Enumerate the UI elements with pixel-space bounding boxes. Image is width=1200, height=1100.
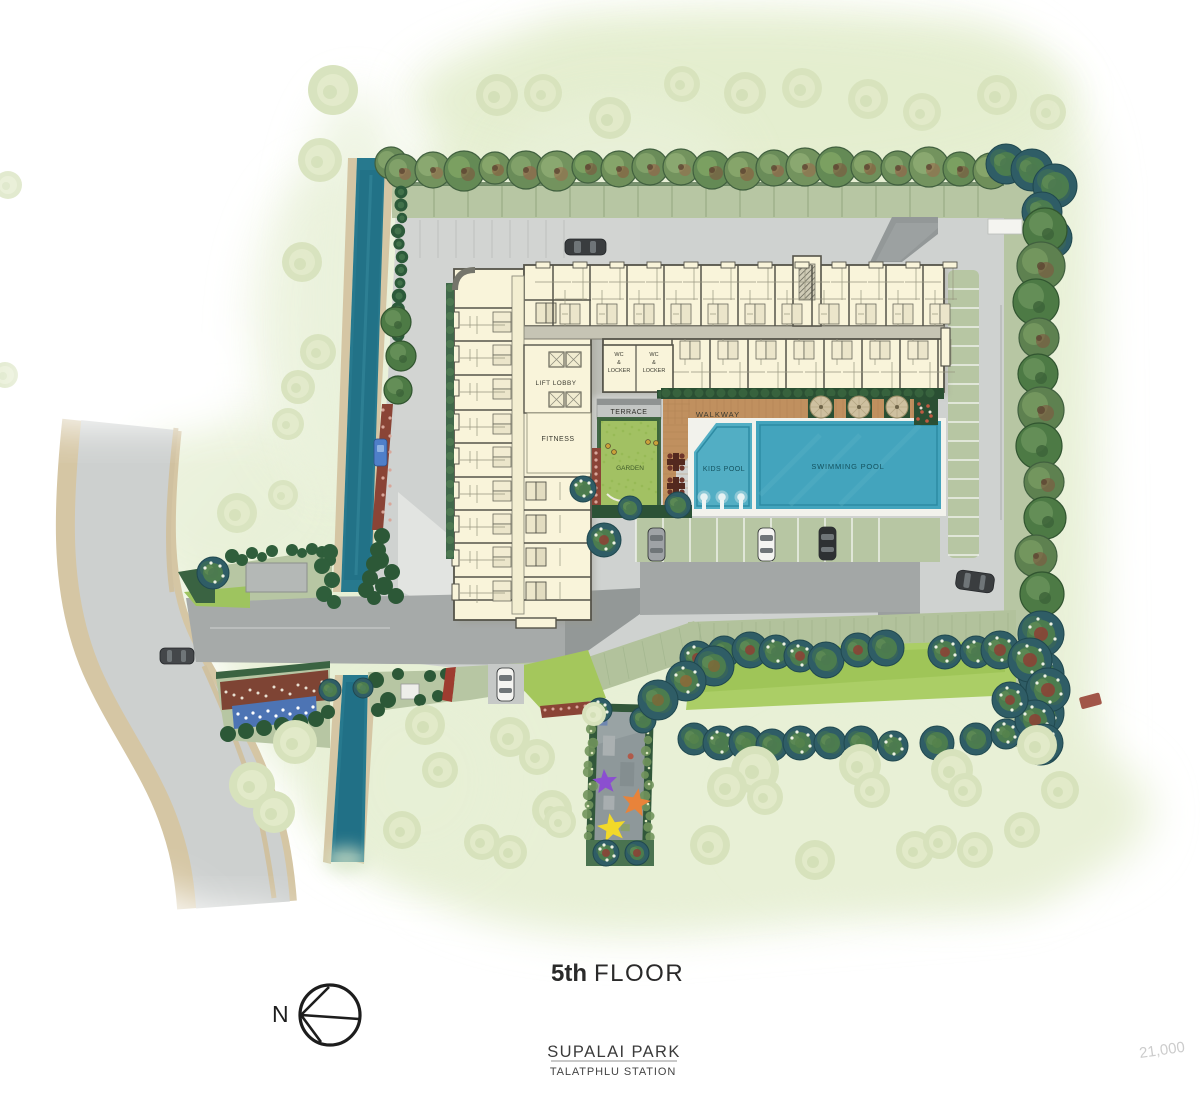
svg-text:N: N [272, 1001, 289, 1027]
svg-text:&: & [617, 360, 621, 366]
svg-text:5thFLOOR: 5thFLOOR [551, 960, 684, 987]
svg-text:&: & [652, 360, 656, 366]
svg-text:WC: WC [614, 352, 623, 358]
svg-text:WC: WC [649, 352, 658, 358]
svg-text:SWIMMING POOL: SWIMMING POOL [811, 462, 884, 471]
svg-text:TALATPHLU STATION: TALATPHLU STATION [550, 1066, 676, 1078]
svg-text:LIFT LOBBY: LIFT LOBBY [535, 380, 576, 387]
svg-text:LOCKER: LOCKER [643, 368, 666, 374]
svg-text:TERRACE: TERRACE [611, 409, 648, 416]
svg-text:LOCKER: LOCKER [608, 368, 631, 374]
svg-text:KIDS POOL: KIDS POOL [703, 466, 745, 473]
svg-text:GARDEN: GARDEN [616, 465, 644, 472]
svg-text:FITNESS: FITNESS [541, 436, 574, 443]
svg-text:SUPALAI PARK: SUPALAI PARK [547, 1043, 681, 1061]
svg-text:WALKWAY: WALKWAY [696, 410, 740, 419]
